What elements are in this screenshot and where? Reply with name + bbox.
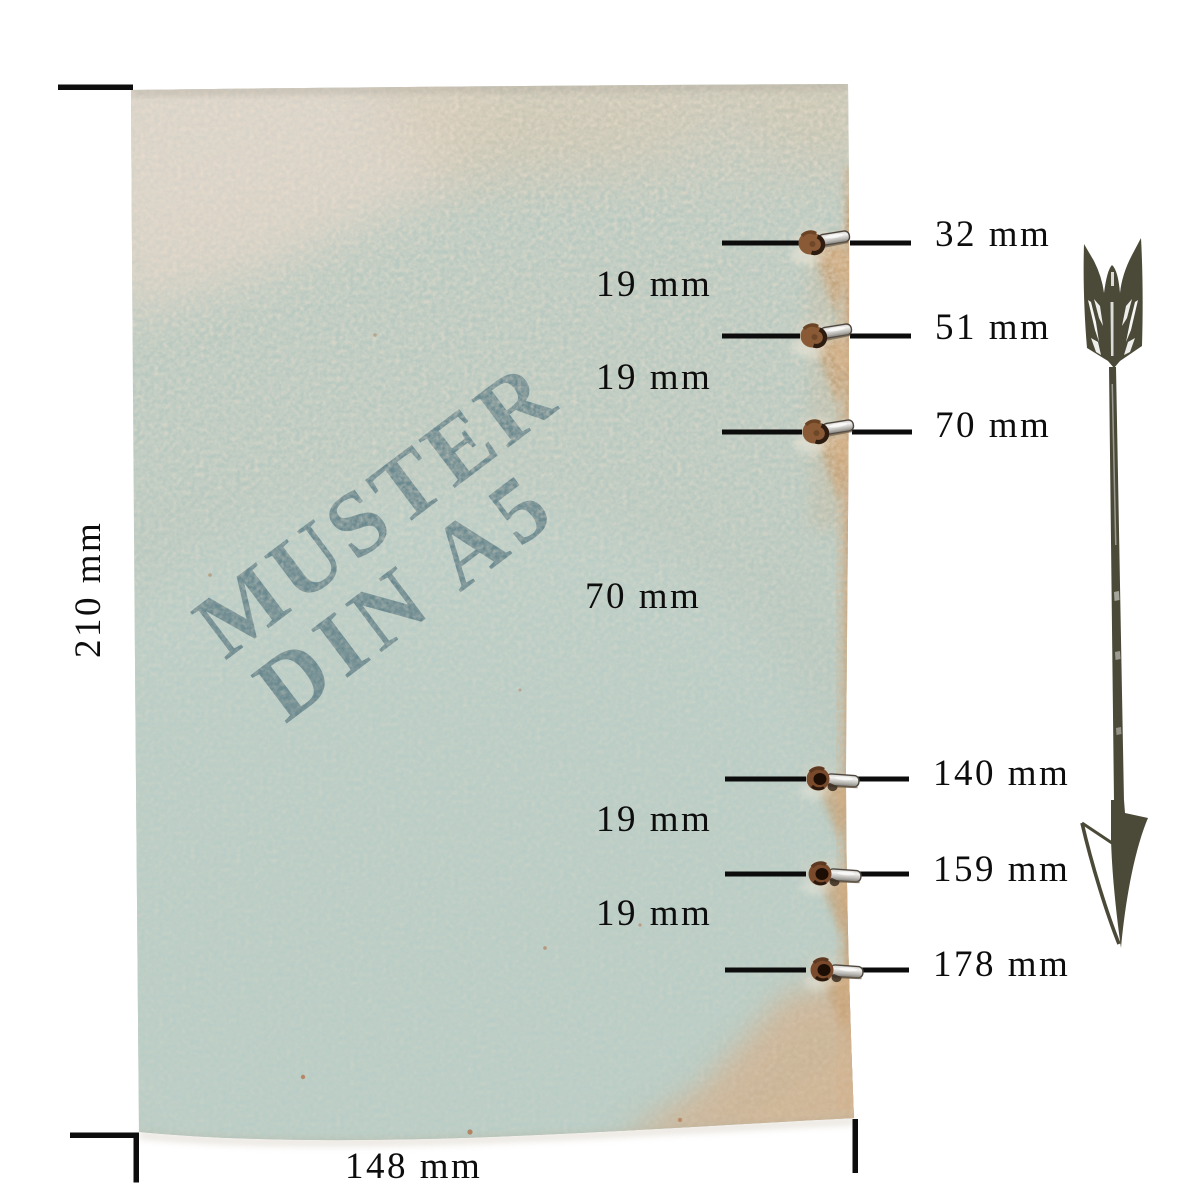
svg-text:19 mm: 19 mm xyxy=(596,799,712,840)
svg-text:178 mm: 178 mm xyxy=(933,944,1070,985)
svg-text:140 mm: 140 mm xyxy=(933,753,1070,794)
svg-text:70 mm: 70 mm xyxy=(935,405,1051,446)
svg-text:148 mm: 148 mm xyxy=(345,1146,482,1187)
svg-text:32 mm: 32 mm xyxy=(935,214,1051,255)
svg-text:70 mm: 70 mm xyxy=(585,576,701,617)
svg-text:159 mm: 159 mm xyxy=(933,849,1070,890)
svg-text:19 mm: 19 mm xyxy=(596,893,712,934)
svg-text:19 mm: 19 mm xyxy=(596,264,712,305)
svg-text:51 mm: 51 mm xyxy=(935,307,1051,348)
svg-text:19 mm: 19 mm xyxy=(596,357,712,398)
svg-text:210 mm: 210 mm xyxy=(68,521,109,658)
